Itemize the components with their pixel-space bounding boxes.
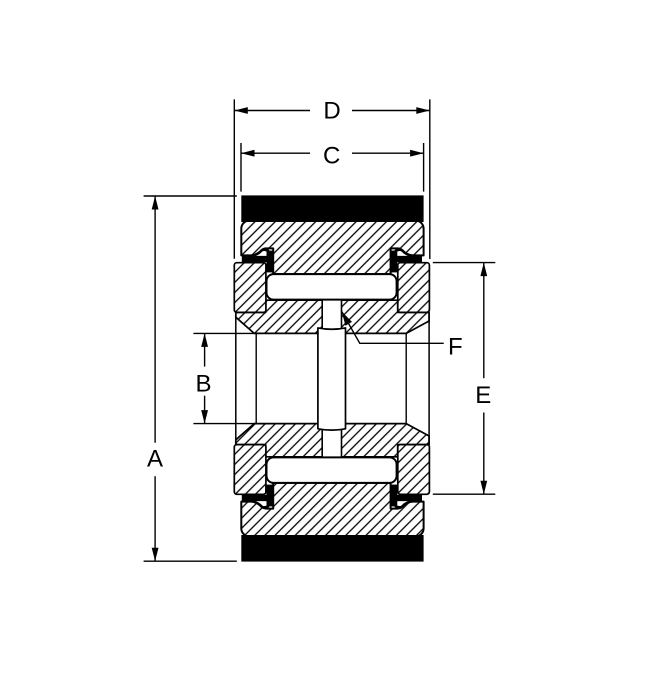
svg-text:F: F	[448, 333, 463, 360]
svg-text:D: D	[323, 98, 340, 125]
svg-text:B: B	[195, 371, 211, 398]
svg-text:A: A	[147, 446, 163, 473]
svg-text:E: E	[475, 382, 491, 409]
svg-text:C: C	[323, 142, 340, 169]
